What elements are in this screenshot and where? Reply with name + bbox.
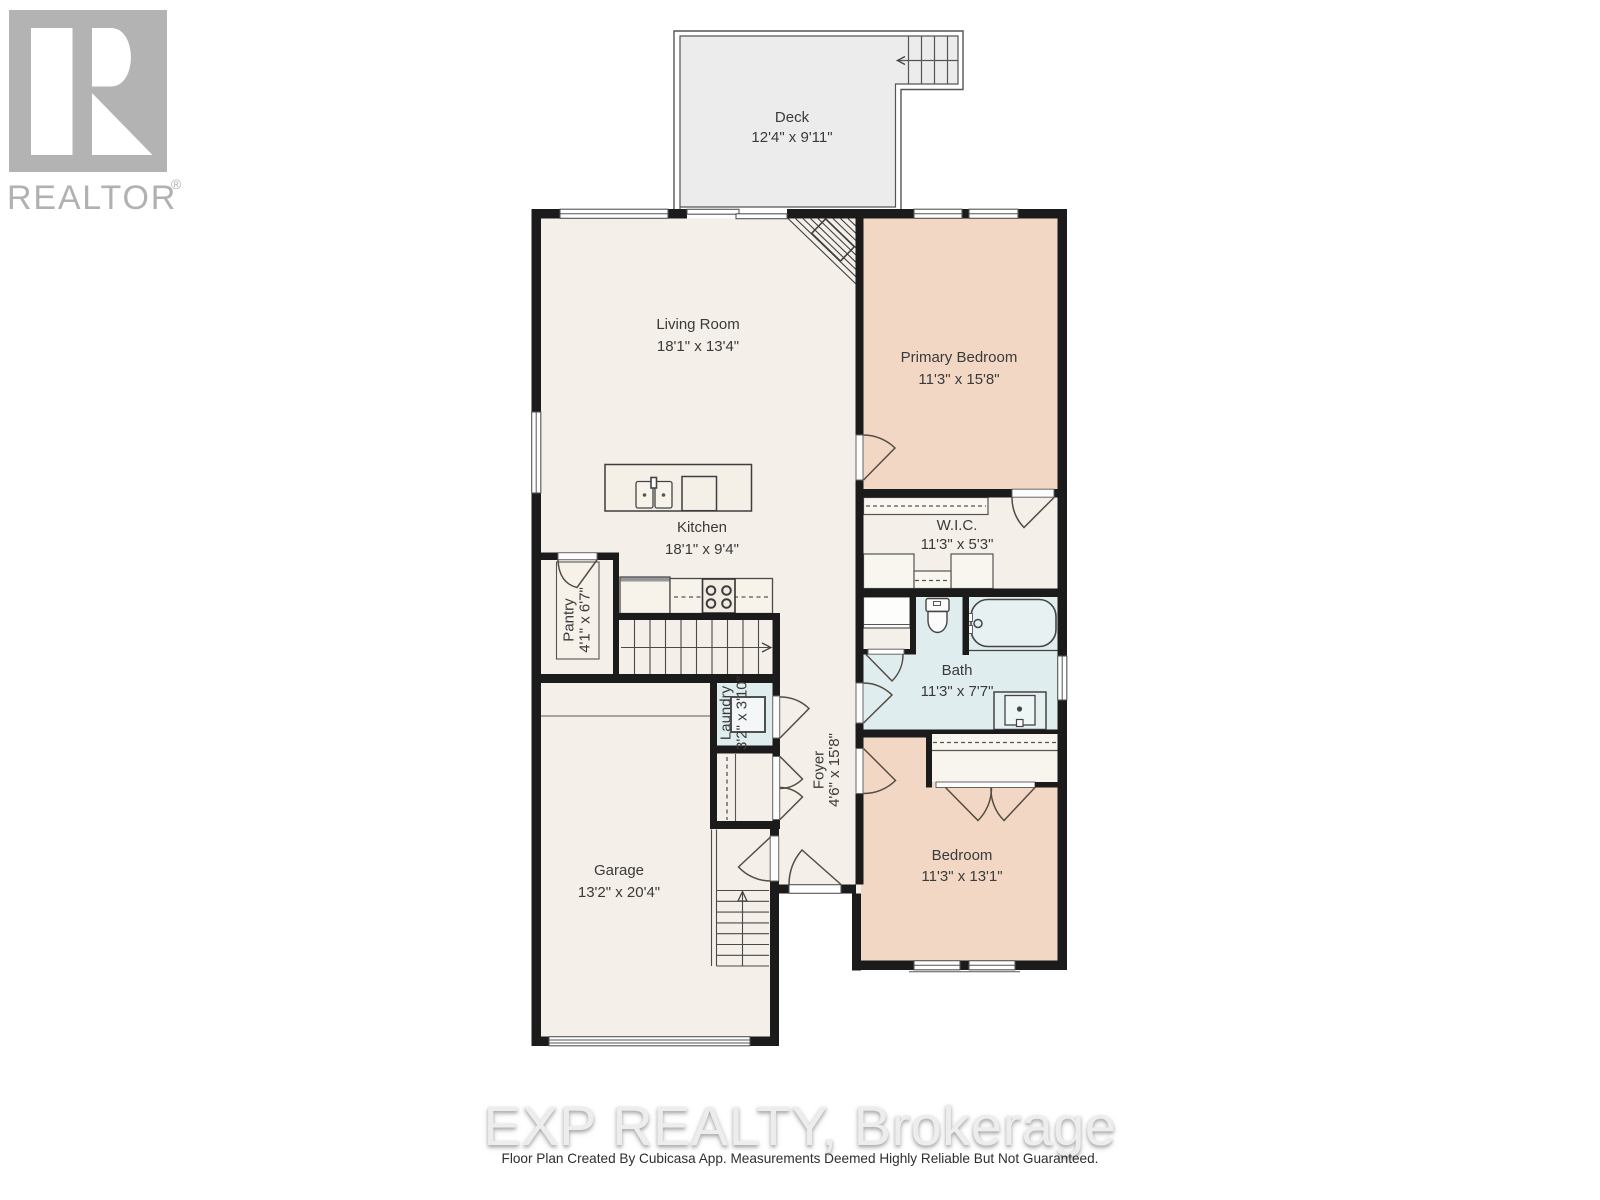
svg-text:Garage: Garage: [594, 862, 644, 879]
svg-text:4'1" x 6'7": 4'1" x 6'7": [577, 587, 594, 653]
svg-text:12'4" x 9'11": 12'4" x 9'11": [751, 129, 832, 146]
svg-text:11'3" x 5'3": 11'3" x 5'3": [921, 536, 994, 553]
svg-text:Laundry: Laundry: [718, 685, 735, 740]
svg-text:11'3" x 7'7": 11'3" x 7'7": [921, 683, 994, 700]
svg-text:Living Room: Living Room: [656, 316, 739, 333]
svg-text:®: ®: [171, 176, 182, 192]
svg-text:REALTOR: REALTOR: [7, 179, 177, 217]
svg-text:4'6" x 15'8": 4'6" x 15'8": [826, 733, 843, 807]
svg-text:Pantry: Pantry: [561, 598, 578, 642]
svg-text:Foyer: Foyer: [811, 751, 828, 789]
svg-text:3'2" x 3'10": 3'2" x 3'10": [734, 676, 751, 750]
svg-text:11'3" x 13'1": 11'3" x 13'1": [921, 868, 1002, 885]
svg-text:Kitchen: Kitchen: [677, 519, 727, 536]
svg-text:11'3" x 15'8": 11'3" x 15'8": [918, 371, 999, 388]
svg-text:W.I.C.: W.I.C.: [937, 517, 978, 534]
svg-text:18'1" x 9'4": 18'1" x 9'4": [665, 541, 739, 558]
svg-text:Primary Bedroom: Primary Bedroom: [901, 349, 1018, 366]
svg-text:Deck: Deck: [775, 109, 810, 126]
svg-text:Bedroom: Bedroom: [932, 847, 993, 864]
svg-text:Bath: Bath: [942, 662, 973, 679]
svg-text:13'2" x 20'4": 13'2" x 20'4": [578, 884, 660, 901]
svg-text:18'1" x 13'4": 18'1" x 13'4": [657, 338, 739, 355]
